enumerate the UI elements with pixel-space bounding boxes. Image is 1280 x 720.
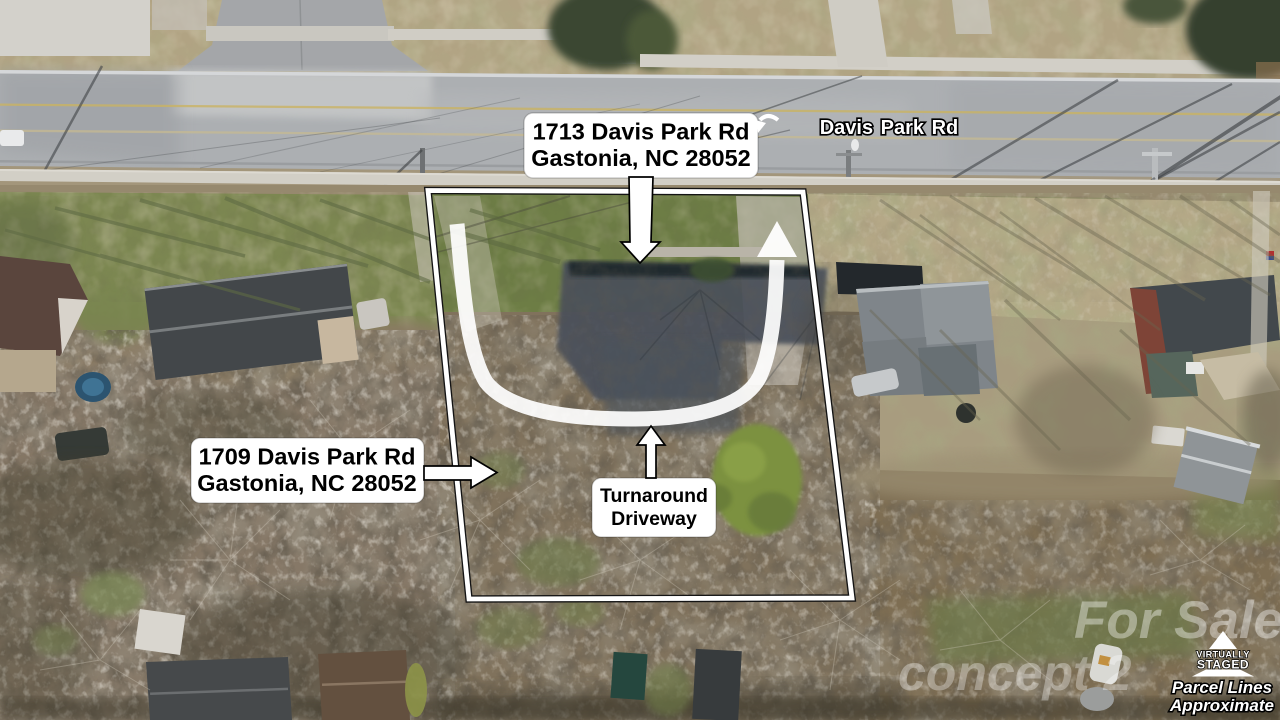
- svg-text:1713 Davis Park Rd: 1713 Davis Park Rd: [533, 119, 750, 145]
- svg-text:Gastonia, NC 28052: Gastonia, NC 28052: [197, 470, 416, 496]
- svg-text:Turnaround: Turnaround: [600, 485, 708, 507]
- svg-text:Gastonia, NC 28052: Gastonia, NC 28052: [531, 145, 750, 171]
- svg-text:1709 Davis Park Rd: 1709 Davis Park Rd: [199, 444, 416, 470]
- svg-text:Davis Park Rd: Davis Park Rd: [820, 117, 959, 139]
- svg-text:Approximate: Approximate: [1169, 696, 1274, 715]
- svg-text:STAGED: STAGED: [1197, 658, 1249, 672]
- svg-text:Parcel Lines: Parcel Lines: [1172, 678, 1272, 697]
- svg-text:For Sale: For Sale: [1074, 591, 1280, 650]
- svg-text:concept 2: concept 2: [898, 645, 1132, 701]
- svg-text:Driveway: Driveway: [611, 508, 697, 530]
